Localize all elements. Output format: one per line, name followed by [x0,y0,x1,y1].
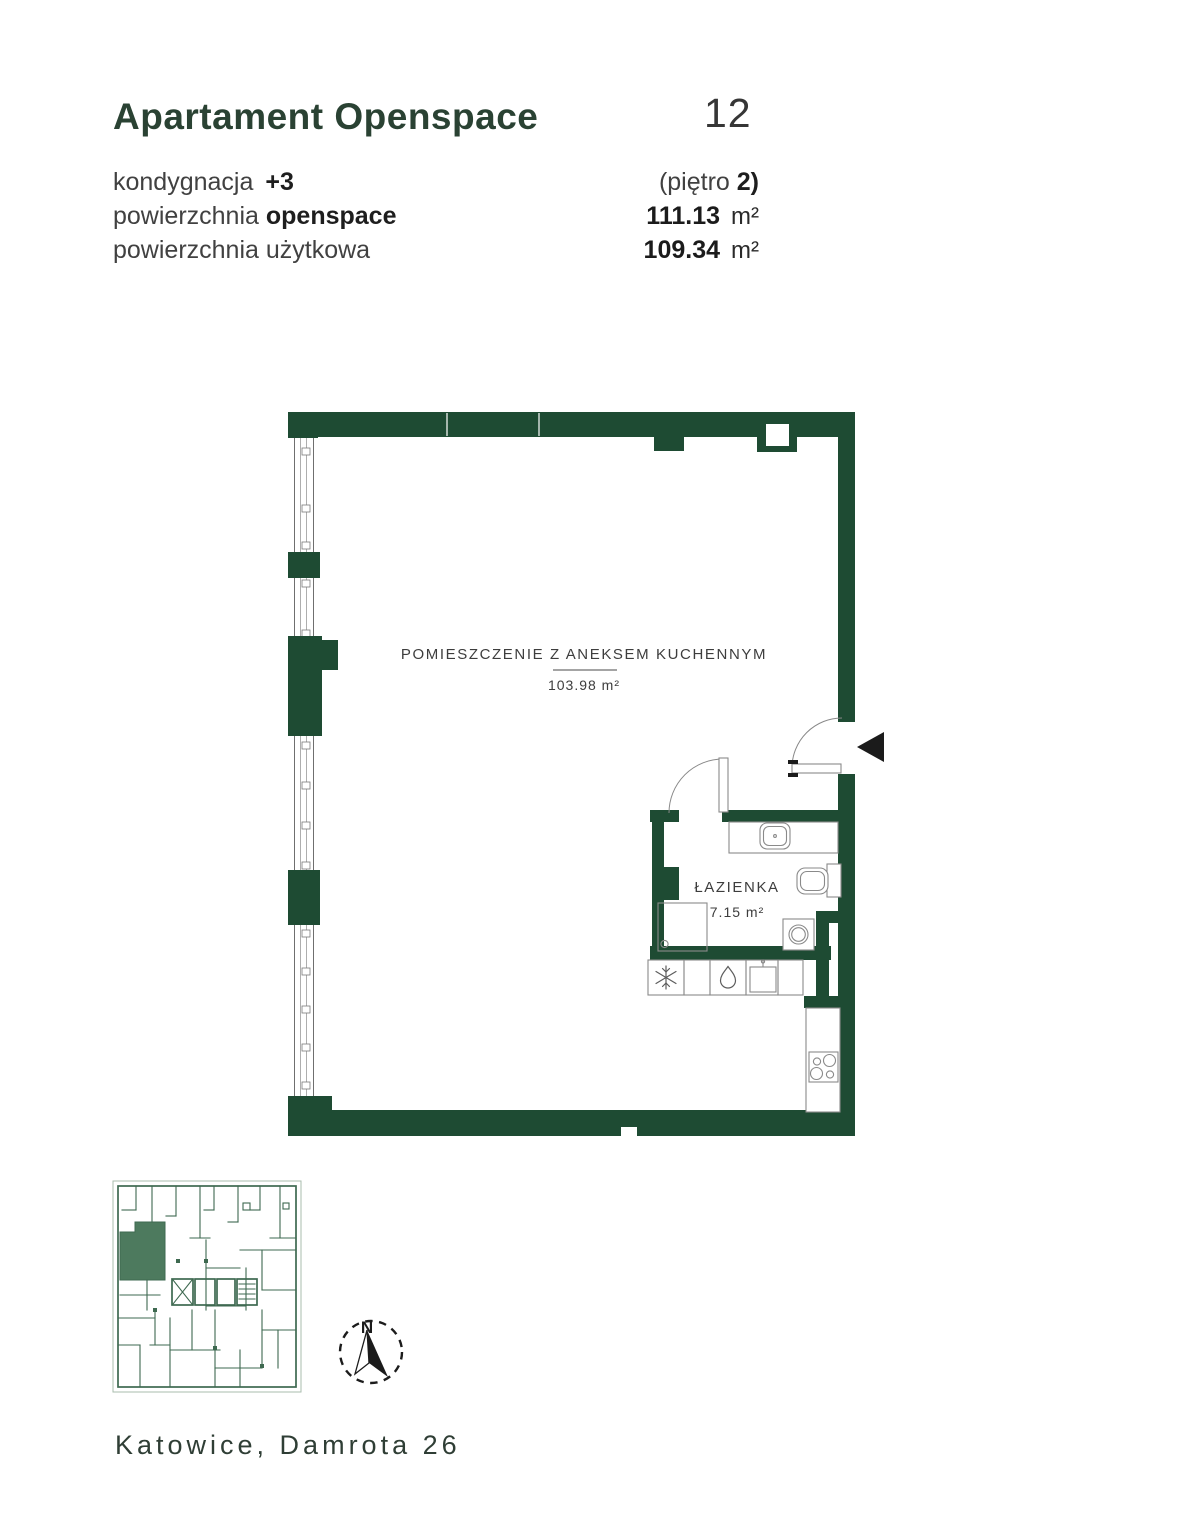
bathroom-door-leaf [719,758,728,812]
dishwasher-unit [710,960,746,995]
kitchen-cabinet [778,960,803,995]
floorplan-sheet: Apartament Openspace 12 kondygnacja+3 (p… [0,0,1179,1517]
bottom-left-corner [288,1096,332,1136]
main-room-label: POMIESZCZENIE Z ANEKSEM KUCHENNYM [401,646,767,663]
miniplan-interior-walls [118,1186,296,1387]
entrance-door [788,718,884,777]
washing-machine-icon [783,919,814,950]
bottom-wall [288,1110,855,1136]
bathroom-top-wall [722,810,840,822]
bathroom-sink-icon [760,823,790,849]
top-wall-shaft-opening [766,424,789,446]
miniplan-outer-frame [113,1181,301,1392]
bathroom-right-wall [816,911,829,1008]
toilet-icon [797,864,841,897]
bathroom-area: 7.15 m² [710,904,764,920]
shower-icon [658,903,707,951]
entrance-door-hinge-mark [788,760,798,764]
kitchen-sink-icon [750,960,776,992]
miniplan-frame [118,1186,296,1387]
entrance-door-arc [792,718,842,768]
bathroom-door-arc [669,759,723,813]
compass-needle-dark [367,1330,388,1377]
window-wall-left [295,436,314,1100]
right-wall-upper [838,412,855,722]
building-overview-miniplan [113,1181,301,1392]
main-room-area: 103.98 m² [548,677,620,693]
bottom-wall-joint [621,1127,637,1136]
snowflake-icon [656,966,676,989]
miniplan-highlighted-unit [120,1222,165,1280]
floorplan-drawing: POMIESZCZENIE Z ANEKSEM KUCHENNYM 103.98… [0,0,1179,1517]
exterior-walls [288,412,855,1136]
window-mullions [302,448,310,1089]
kitchen-nook-wall [804,996,843,1008]
entrance-door-leaf [792,764,841,773]
bathroom-label: ŁAZIENKA [694,879,779,896]
bathroom-left-pier [652,867,679,900]
entrance-door-hinge-mark [788,773,798,777]
bathroom-door [669,758,728,813]
compass-icon: N [340,1318,402,1383]
entrance-arrow-icon [857,732,884,762]
top-wall-pier [654,437,684,451]
sink-cabinet [746,960,778,995]
water-drop-icon [721,967,736,989]
kitchen-cabinet [684,960,710,995]
kitchen-units [648,960,840,1112]
address: Katowice, Damrota 26 [115,1430,461,1461]
top-left-corner [288,412,318,438]
